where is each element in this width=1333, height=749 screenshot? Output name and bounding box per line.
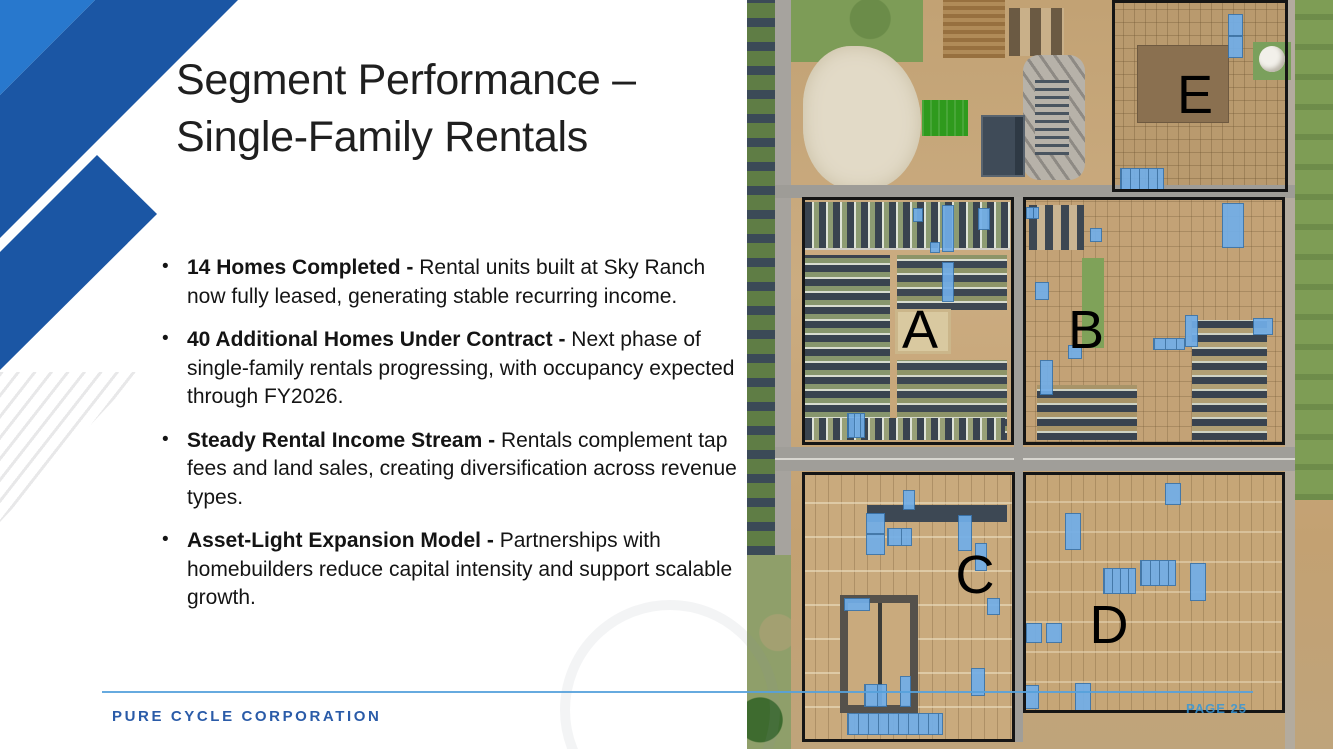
bullet-item: 14 Homes Completed - Rental units built … [160, 254, 738, 311]
photo-road-vertical-mid [1014, 197, 1023, 742]
brush-streaks-decoration [0, 372, 140, 522]
footer-divider-line [102, 691, 1253, 693]
bullet-lead: 40 Additional Homes Under Contract - [187, 328, 565, 351]
map-region-box-d [1023, 472, 1285, 713]
bullet-list: 14 Homes Completed - Rental units built … [160, 254, 738, 628]
photo-top-buildings [1009, 8, 1064, 56]
aerial-photo: ABECD [747, 0, 1333, 749]
bullet-lead: Steady Rental Income Stream - [187, 429, 495, 452]
photo-road-horizontal-mid [775, 447, 1295, 471]
map-region-label-e: E [1177, 68, 1213, 122]
bullet-lead: Asset-Light Expansion Model - [187, 529, 494, 552]
map-region-label-a: A [902, 303, 938, 357]
page-title: Segment Performance – Single-Family Rent… [176, 52, 751, 166]
bullet-lead: 14 Homes Completed - [187, 256, 413, 279]
photo-left-neighborhood [747, 0, 775, 555]
footer-company: PURE CYCLE CORPORATION [112, 708, 381, 725]
photo-tilled-rows [943, 0, 1005, 58]
photo-sports-field [922, 100, 968, 136]
photo-excavation-area [803, 46, 921, 190]
map-region-box-c [802, 472, 1015, 742]
slide-canvas: Segment Performance – Single-Family Rent… [0, 0, 1333, 749]
bullet-item: Asset-Light Expansion Model - Partnershi… [160, 527, 738, 613]
map-region-label-c: C [956, 548, 995, 602]
page-number: PAGE 25 [1186, 701, 1247, 716]
title-line-2: Single-Family Rentals [176, 113, 588, 161]
map-region-label-b: B [1068, 303, 1104, 357]
photo-school-building [981, 115, 1025, 177]
bullet-item: 40 Additional Homes Under Contract - Nex… [160, 326, 738, 412]
photo-parking-cars [1035, 80, 1069, 155]
map-region-label-d: D [1090, 598, 1129, 652]
bullet-item: Steady Rental Income Stream - Rentals co… [160, 427, 738, 513]
map-region-box-b [1023, 197, 1285, 445]
title-line-1: Segment Performance – [176, 56, 636, 104]
photo-right-green-strip [1295, 0, 1333, 500]
